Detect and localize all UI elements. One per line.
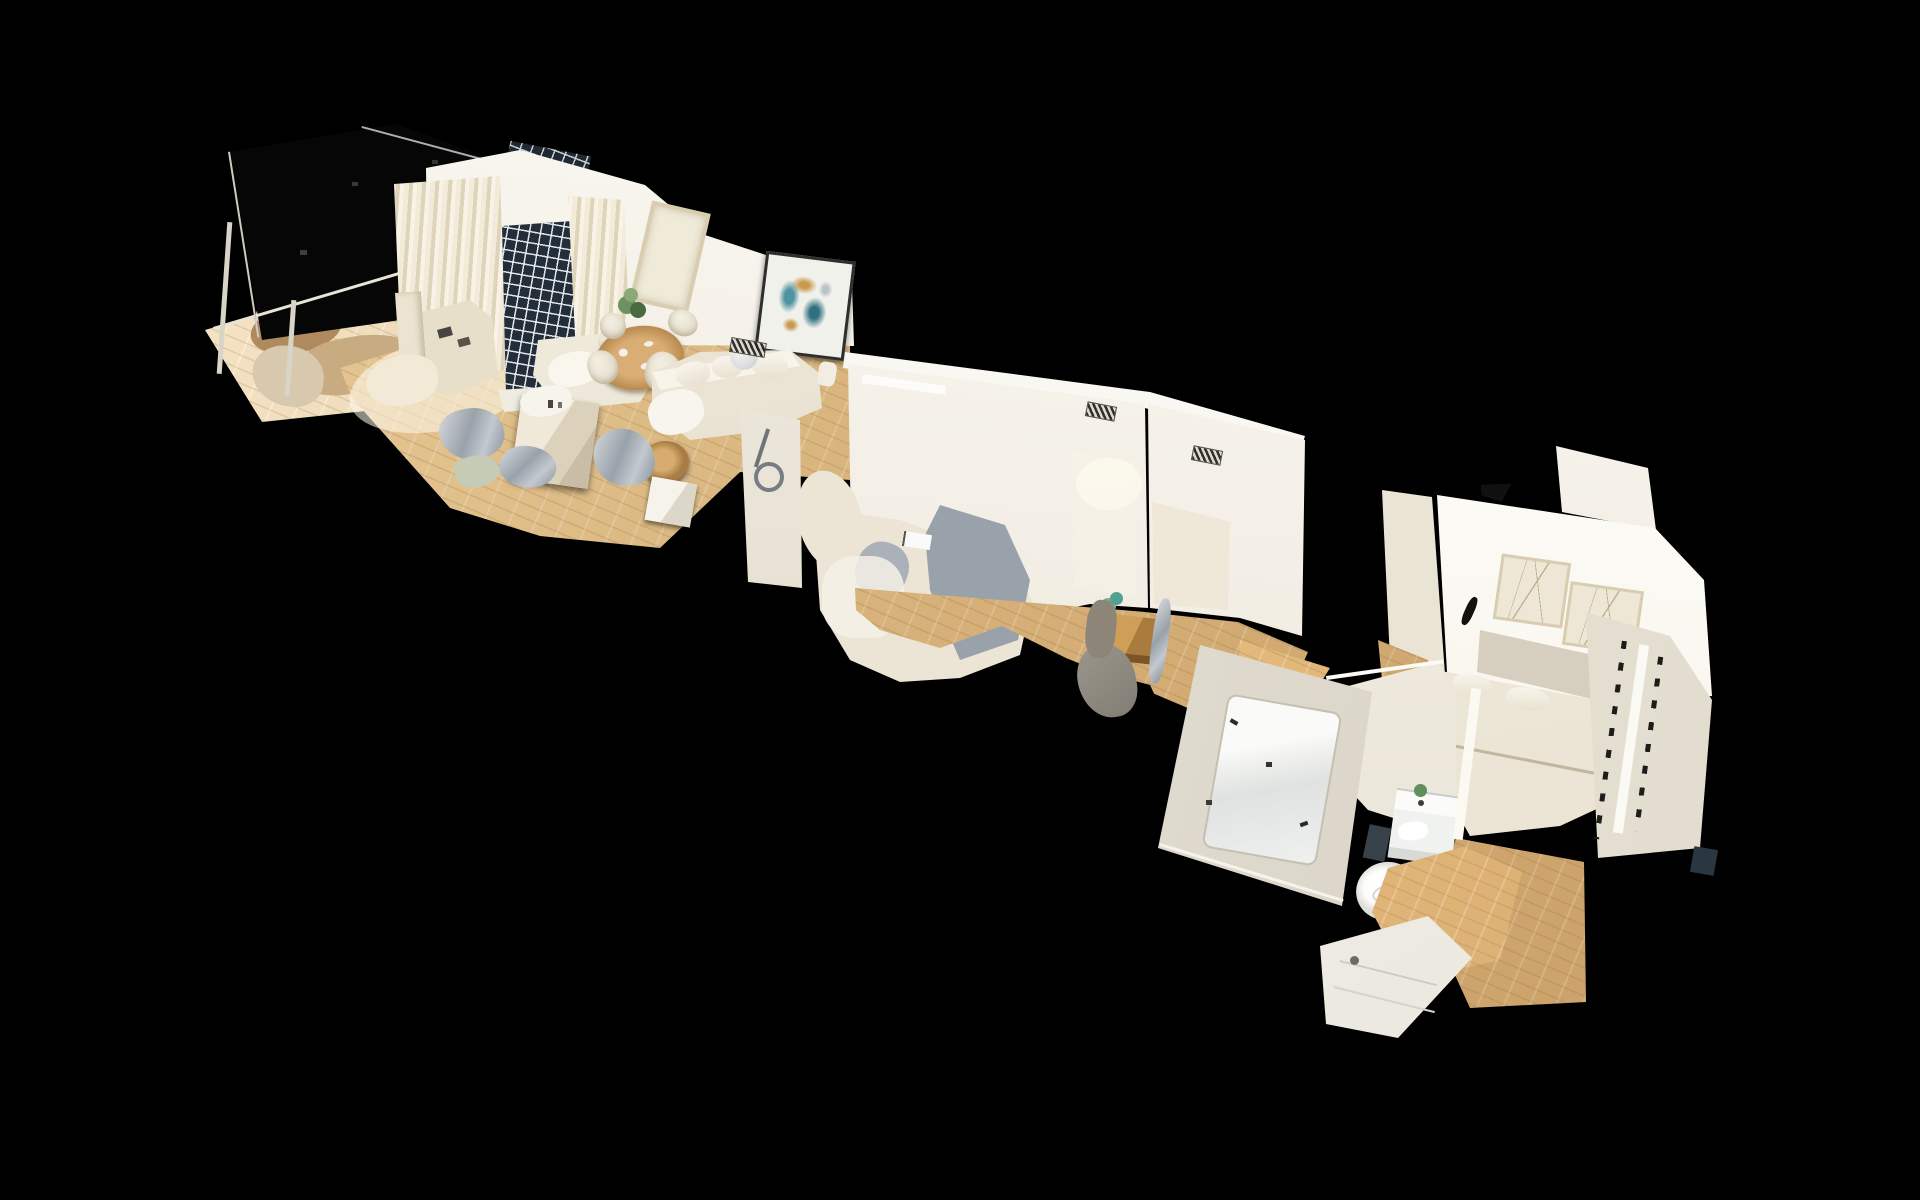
mirror-partition-wall	[0, 0, 1920, 1200]
hall-floor-upper	[0, 0, 1920, 1200]
scan-speck	[1206, 800, 1212, 805]
dollhouse-viewport[interactable]	[0, 0, 1920, 1200]
region-hallway	[0, 0, 1920, 1200]
scan-speck	[1266, 762, 1272, 767]
